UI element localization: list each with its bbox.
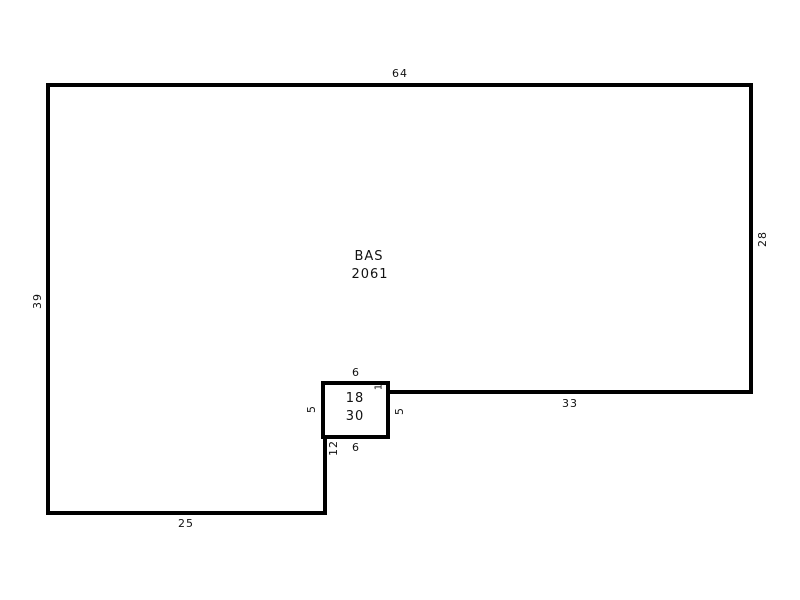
dim-box-top-6: 6 bbox=[352, 366, 360, 379]
floor-plan-canvas: BAS 2061 18 30 64 28 39 33 25 6 6 5 5 1 … bbox=[0, 0, 800, 600]
dim-notch-12: 12 bbox=[327, 440, 340, 456]
dim-right-28: 28 bbox=[756, 231, 769, 247]
area-code-label: BAS bbox=[354, 249, 383, 264]
dim-box-left-5: 5 bbox=[305, 405, 318, 413]
floor-plan-sketch: BAS 2061 18 30 64 28 39 33 25 6 6 5 5 1 … bbox=[0, 0, 800, 600]
area-sqft-label: 2061 bbox=[351, 267, 388, 282]
dim-bottom-25: 25 bbox=[178, 517, 194, 530]
dim-left-39: 39 bbox=[31, 293, 44, 309]
building-outline bbox=[48, 85, 751, 513]
dim-midwall-33: 33 bbox=[562, 397, 578, 410]
dim-top-64: 64 bbox=[392, 67, 408, 80]
dim-box-bottom-6: 6 bbox=[352, 441, 360, 454]
inner-box-line1: 18 bbox=[346, 391, 365, 406]
dim-box-right-5: 5 bbox=[393, 407, 406, 415]
inner-box-line2: 30 bbox=[346, 409, 365, 424]
dim-box-offset-1: 1 bbox=[374, 384, 385, 390]
